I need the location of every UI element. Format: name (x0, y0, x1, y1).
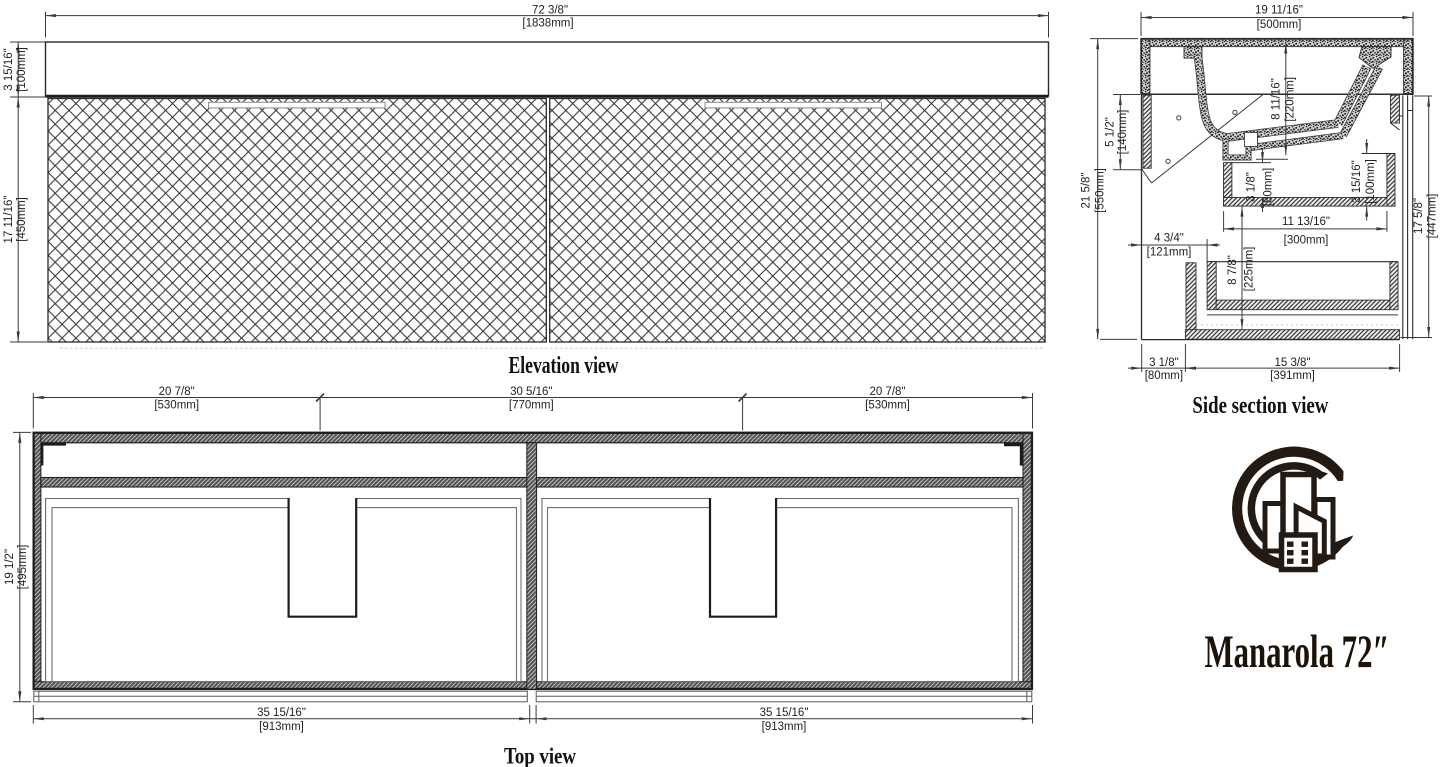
svg-text:Top view: Top view (504, 744, 576, 767)
svg-text:72 3/8": 72 3/8" (532, 4, 568, 16)
svg-text:Elevation view: Elevation view (509, 353, 619, 379)
svg-text:[1838mm]: [1838mm] (522, 17, 573, 29)
svg-text:[550mm]: [550mm] (1095, 168, 1107, 213)
svg-text:8 7/8": 8 7/8" (1227, 255, 1239, 285)
svg-text:20 7/8": 20 7/8" (869, 386, 905, 398)
svg-text:[140mm]: [140mm] (1117, 110, 1129, 155)
svg-text:4 3/4": 4 3/4" (1154, 233, 1184, 245)
svg-text:[225mm]: [225mm] (1244, 247, 1256, 292)
svg-text:17 11/16": 17 11/16" (3, 196, 15, 244)
svg-text:15 3/8": 15 3/8" (1274, 357, 1310, 369)
svg-text:[447mm]: [447mm] (1427, 194, 1439, 239)
svg-text:[530mm]: [530mm] (865, 400, 910, 412)
svg-text:[100mm]: [100mm] (1365, 159, 1377, 204)
svg-text:20 7/8": 20 7/8" (159, 386, 195, 398)
svg-text:3 15/16": 3 15/16" (1351, 160, 1363, 202)
svg-text:3 1/8": 3 1/8" (1149, 357, 1179, 369)
svg-text:[495mm]: [495mm] (17, 545, 29, 590)
svg-text:[913mm]: [913mm] (259, 721, 304, 733)
svg-text:21 5/8": 21 5/8" (1081, 172, 1093, 208)
svg-text:35 15/16": 35 15/16" (760, 707, 809, 719)
svg-text:Manarola 72″: Manarola 72″ (1205, 626, 1390, 678)
svg-text:[220mm]: [220mm] (1285, 77, 1297, 122)
svg-text:8 11/16": 8 11/16" (1270, 78, 1282, 120)
svg-text:19 1/2": 19 1/2" (4, 549, 16, 585)
svg-text:5 1/2": 5 1/2" (1105, 117, 1117, 147)
svg-text:[80mm]: [80mm] (1263, 168, 1275, 206)
svg-text:[121mm]: [121mm] (1147, 247, 1192, 259)
svg-text:[500mm]: [500mm] (1257, 19, 1302, 31)
svg-text:[530mm]: [530mm] (154, 400, 199, 412)
svg-text:[100mm]: [100mm] (16, 47, 28, 92)
svg-text:Side section view: Side section view (1192, 393, 1329, 419)
svg-text:[300mm]: [300mm] (1284, 235, 1329, 247)
svg-text:3 1/8": 3 1/8" (1246, 172, 1258, 202)
svg-text:17 5/8": 17 5/8" (1413, 198, 1425, 234)
svg-text:11 13/16": 11 13/16" (1282, 216, 1330, 228)
svg-text:[913mm]: [913mm] (762, 721, 807, 733)
svg-text:[770mm]: [770mm] (509, 400, 554, 412)
svg-text:35 15/16": 35 15/16" (257, 707, 306, 719)
svg-text:[391mm]: [391mm] (1270, 370, 1315, 382)
svg-text:30 5/16": 30 5/16" (510, 386, 552, 398)
svg-text:[450mm]: [450mm] (16, 197, 28, 242)
svg-text:19 11/16": 19 11/16" (1255, 5, 1303, 17)
svg-text:[80mm]: [80mm] (1145, 370, 1183, 382)
svg-text:3 15/16": 3 15/16" (3, 48, 15, 90)
